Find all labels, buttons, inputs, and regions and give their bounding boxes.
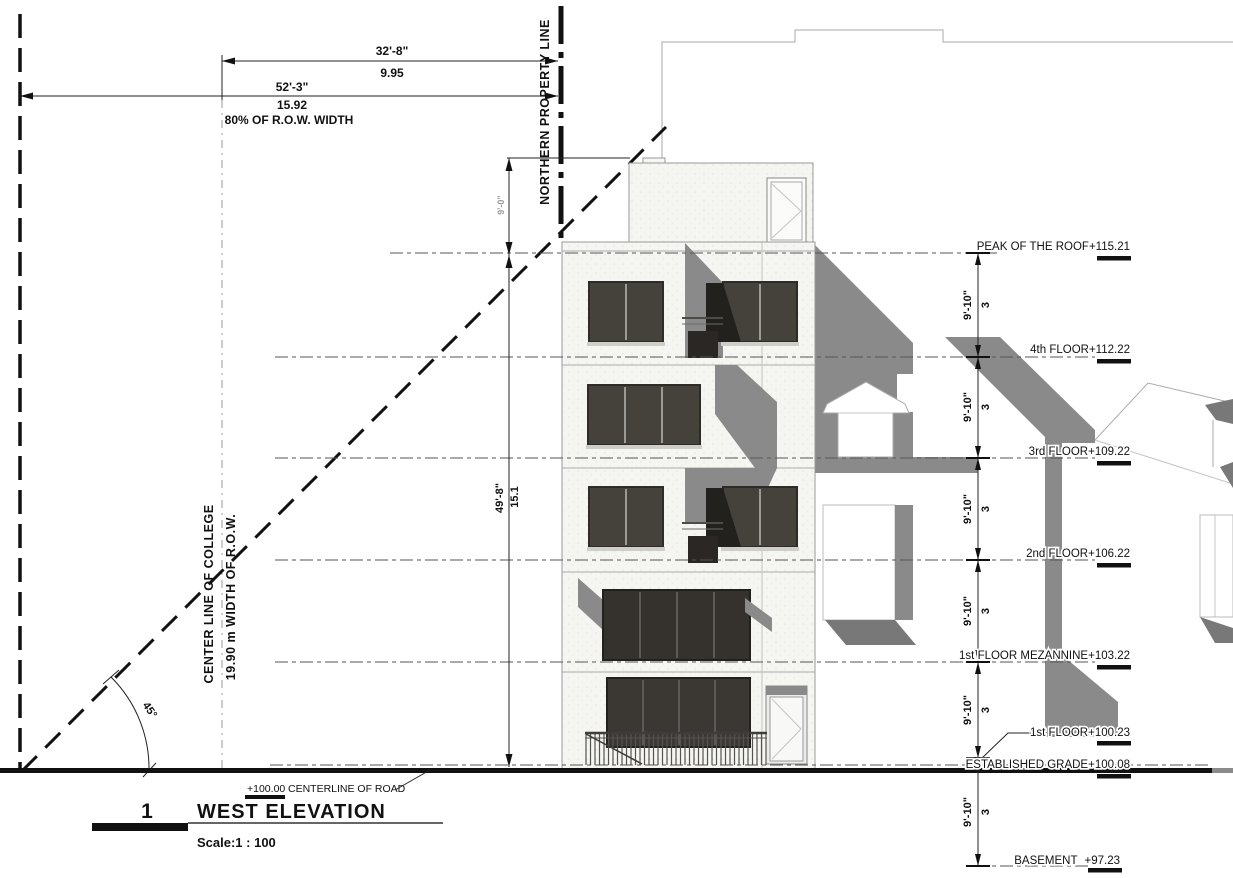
center-line-of-college-label: CENTER LINE OF COLLEGE (202, 504, 216, 683)
window-sill (721, 547, 799, 551)
level-label-1st: 1st FLOOR+100.23 (1030, 727, 1130, 739)
level-label-peak: PEAK OF THE ROOF+115.21 (977, 241, 1130, 253)
title-bar (92, 823, 188, 831)
level-bar (1097, 563, 1131, 568)
floor-spacing-label: 9'-10" (962, 290, 974, 320)
door-panel (770, 697, 803, 761)
road-elevation-bar (245, 795, 285, 799)
floor-spacing-label: 9'-10" (962, 392, 974, 422)
drawing-title: WEST ELEVATION (197, 801, 386, 823)
level-bar (1097, 359, 1131, 364)
window-sill (587, 342, 665, 346)
floor-spacing-metric: 3 (980, 809, 992, 815)
level-bar (1097, 741, 1131, 746)
building-height-imperial: 49'-8" (494, 483, 506, 513)
drawing-number: 1 (141, 800, 153, 823)
right-building-lower (1200, 515, 1233, 617)
level-bar (1088, 868, 1122, 873)
building-height-metric: 15.1 (509, 486, 521, 507)
level-label-basement: BASEMENT+97.23 (1014, 855, 1120, 867)
door-header (766, 686, 807, 695)
northern-property-line-label: NORTHERN PROPERTY LINE (538, 19, 552, 205)
story-mezzanine (578, 578, 772, 660)
balcony-window (688, 536, 718, 563)
level-label-mezzanine: 1st FLOOR MEZANNINE+103.22 (959, 650, 1130, 662)
floor-spacing-metric: 3 (980, 707, 992, 713)
floor-spacing-label: 9'-10" (962, 797, 974, 827)
story-ground (585, 678, 807, 765)
cast-shadow-column (1045, 473, 1062, 655)
sky-notch (897, 374, 965, 412)
level-bar (1097, 665, 1131, 670)
floor-spacing-metric: 3 (980, 608, 992, 614)
level-bar (1097, 256, 1131, 261)
level-bar (1097, 774, 1131, 779)
dim-row-note: 80% OF R.O.W. WIDTH (225, 113, 354, 127)
window-sill (586, 445, 702, 449)
row-width-label: 19.90 m WIDTH OF R.O.W. (224, 514, 238, 680)
window-sill (587, 547, 665, 551)
level-label-3rd: 3rd FLOOR+109.22 (1029, 446, 1130, 458)
dim-32-8-metric: 9.95 (380, 66, 404, 80)
dim-32-8-imperial: 32'-8" (376, 44, 409, 58)
dim-52-3-metric: 15.92 (277, 98, 307, 112)
floor-spacing-metric: 3 (980, 302, 992, 308)
level-label-2nd: 2nd FLOOR+106.22 (1026, 548, 1130, 560)
drawing-scale: Scale:1 : 100 (197, 835, 276, 850)
level-label-grade: ESTABLISHED GRADE+100.08 (966, 759, 1130, 771)
west-elevation-drawing: 45° NORTHERN PROPERTY LINE CENTER LINE O… (0, 0, 1233, 878)
floor-spacing-metric: 3 (980, 506, 992, 512)
level-label-4th: 4th FLOOR+112.22 (1030, 344, 1130, 356)
penthouse-height-label: 9'-0" (496, 195, 506, 214)
dim-52-3-imperial: 52'-3" (276, 80, 309, 94)
road-elevation: +100.00 (247, 783, 285, 795)
floor-spacing-metric: 3 (980, 404, 992, 410)
roof-access-door (767, 178, 806, 244)
neighbour-house-side-shadow (895, 505, 913, 620)
floor-spacing-label: 9'-10" (962, 596, 974, 626)
balcony-window (688, 331, 718, 358)
level-bar (1097, 461, 1131, 466)
ground-line-tail (1212, 768, 1233, 773)
road-centerline-label: CENTERLINE OF ROAD (288, 783, 406, 795)
window (588, 385, 700, 445)
floor-spacing-label: 9'-10" (962, 494, 974, 524)
window-sill (721, 342, 799, 346)
neighbour-house-body (823, 505, 895, 620)
main-building (562, 158, 815, 770)
floor-spacing-label: 9'-10" (962, 695, 974, 725)
